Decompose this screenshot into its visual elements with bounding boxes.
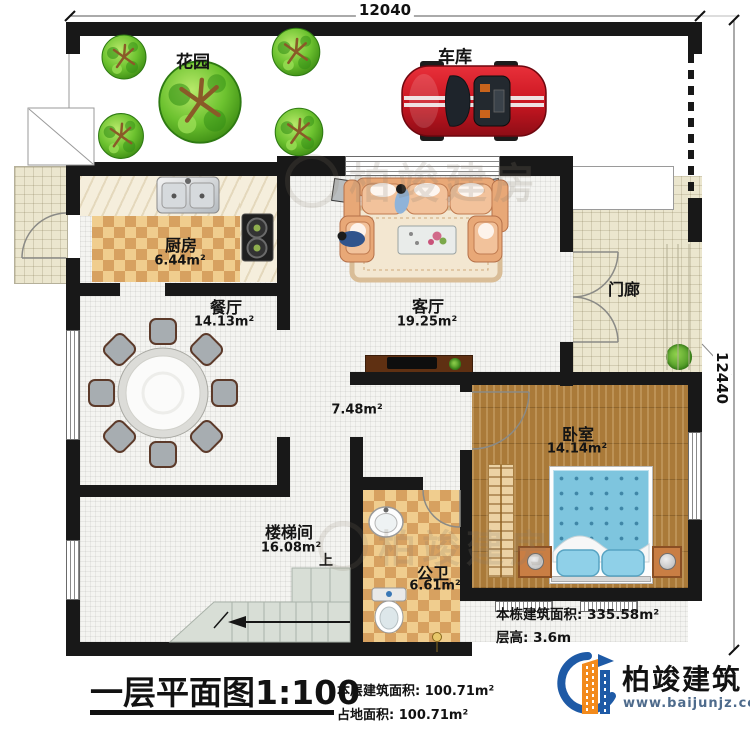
garden-label: 花园 bbox=[176, 48, 210, 73]
wardrobe bbox=[488, 464, 514, 578]
wall bbox=[66, 162, 285, 176]
bedroom-area: 14.14m² bbox=[547, 442, 607, 457]
wall bbox=[66, 22, 702, 36]
wall bbox=[460, 588, 702, 601]
wall bbox=[66, 22, 80, 54]
side-porch-floor bbox=[14, 166, 68, 284]
wall bbox=[363, 477, 423, 490]
car bbox=[402, 61, 546, 141]
outside-step-box bbox=[28, 108, 94, 165]
wall bbox=[66, 162, 80, 215]
tv-screen bbox=[387, 357, 437, 369]
stairwell-label: 楼梯间 bbox=[265, 519, 313, 543]
garage-label: 车库 bbox=[438, 43, 472, 68]
wall bbox=[66, 283, 120, 296]
top-dimension: 12040 bbox=[356, 1, 414, 19]
bedroom-right-window bbox=[688, 432, 702, 520]
dining-left-window bbox=[66, 330, 80, 440]
stairwell-area: 16.08m² bbox=[261, 541, 321, 556]
wall bbox=[66, 642, 472, 656]
wall bbox=[277, 437, 290, 497]
bed-headboard bbox=[551, 576, 651, 582]
cabinet-plant-icon bbox=[449, 358, 461, 370]
porch-plant-icon bbox=[666, 344, 692, 370]
lamp-right-icon bbox=[659, 553, 676, 570]
living-area: 19.25m² bbox=[397, 315, 457, 330]
kitchen-label: 厨房 bbox=[165, 232, 197, 256]
total-building-area: 本栋建筑面积: 335.58m² bbox=[496, 603, 659, 623]
wall bbox=[688, 372, 702, 432]
wall bbox=[688, 520, 702, 590]
garage-opening-dashed bbox=[688, 54, 694, 198]
floor-height: 层高: 3.6m bbox=[496, 626, 571, 646]
wall bbox=[277, 170, 290, 330]
bathroom-area: 6.61m² bbox=[409, 579, 460, 594]
wall bbox=[472, 372, 702, 385]
brand-logo-icon bbox=[561, 654, 614, 714]
porch-landing bbox=[572, 166, 674, 210]
wall bbox=[560, 156, 573, 252]
stair-left-window bbox=[66, 540, 80, 600]
title-underline bbox=[90, 710, 334, 715]
living-front-window bbox=[345, 156, 500, 176]
lamp-left-icon bbox=[527, 553, 544, 570]
plan-title: 一层平面图1:100 bbox=[90, 666, 360, 714]
garden-trees bbox=[99, 28, 323, 158]
wall bbox=[688, 22, 702, 54]
floor-plan-canvas: 花园 车库 厨房 6.44m² 餐厅 14.13m² 客厅 19.25m² 门廊… bbox=[0, 0, 750, 730]
floor-area-line: 本层建筑面积: 100.71m² bbox=[337, 680, 494, 699]
brand-website: www.baijunjz.com bbox=[623, 696, 750, 711]
hallway-area: 7.48m² bbox=[331, 403, 382, 418]
right-dimension: 12440 bbox=[713, 349, 731, 407]
wall bbox=[688, 198, 702, 242]
bed-mattress bbox=[553, 470, 649, 562]
wall bbox=[460, 372, 472, 392]
wall bbox=[66, 485, 282, 497]
brand-name: 柏竣建筑 bbox=[622, 658, 742, 698]
wall bbox=[350, 372, 472, 385]
porch-label: 门廊 bbox=[608, 276, 640, 300]
wall bbox=[350, 437, 363, 656]
kitchen-area: 6.44m² bbox=[154, 254, 205, 269]
living-label: 客厅 bbox=[412, 293, 444, 317]
wall bbox=[460, 450, 472, 590]
land-area-line: 占地面积: 100.71m² bbox=[337, 704, 468, 723]
dining-area: 14.13m² bbox=[194, 315, 254, 330]
stairs-up-label: 上 bbox=[319, 550, 333, 570]
